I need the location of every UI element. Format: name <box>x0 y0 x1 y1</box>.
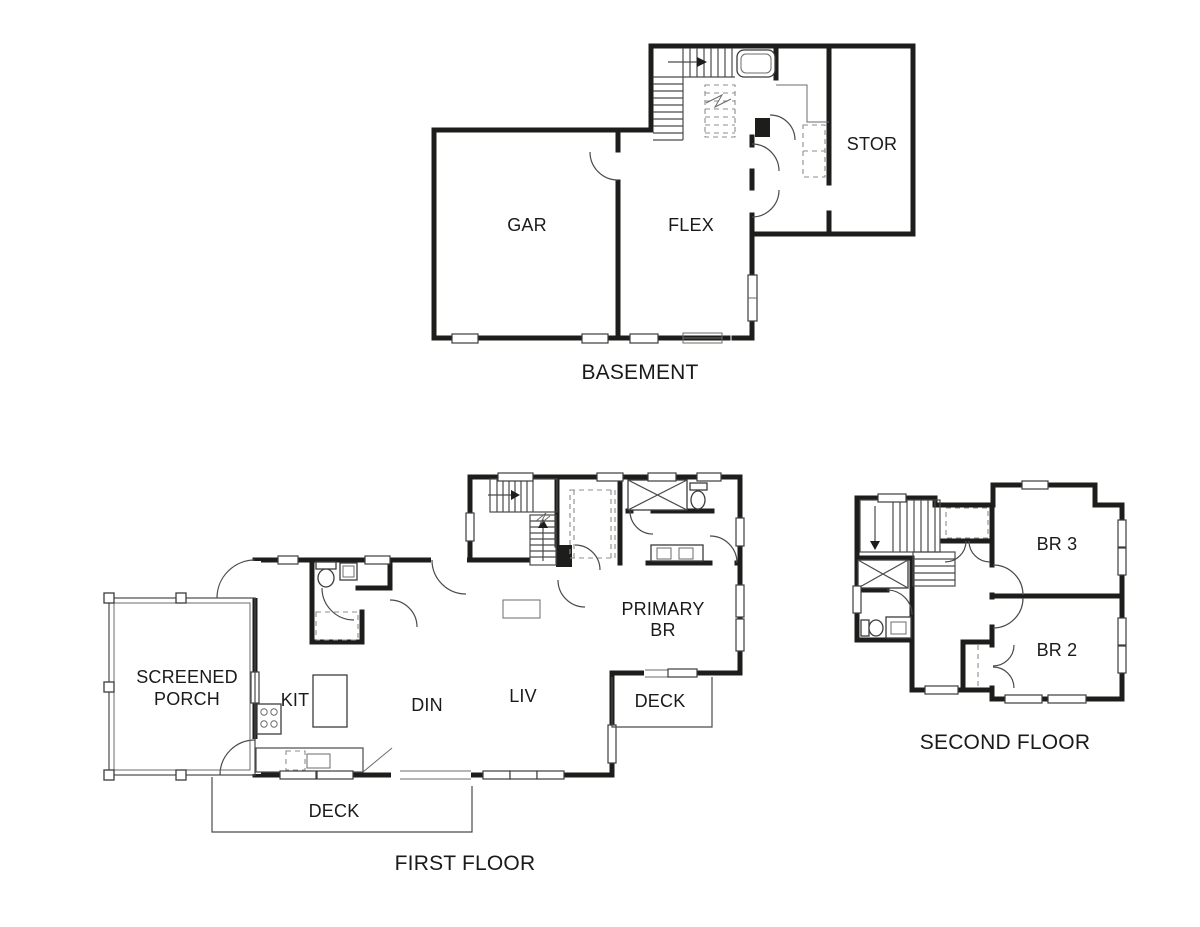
porch-post <box>104 770 114 780</box>
stair-hall-door-arc <box>575 545 600 570</box>
second-floor-plan: BR 3 BR 2 SECOND FLOOR <box>853 481 1126 754</box>
hall-door-arc <box>390 600 417 627</box>
primary-br-label-1: PRIMARY <box>621 599 704 619</box>
first-floor-plan: SCREENED PORCH KIT DIN LIV PRIMARY BR DE… <box>104 473 744 875</box>
basement-dashed-shelves <box>803 125 825 177</box>
powder-door-arc <box>322 588 354 620</box>
first-floor-title: FIRST FLOOR <box>395 852 536 875</box>
powder-room <box>316 562 357 587</box>
garage-label: GAR <box>507 215 547 235</box>
second-floor-title: SECOND FLOOR <box>920 731 1090 754</box>
kitchen-fixtures <box>256 675 392 772</box>
basement-title: BASEMENT <box>581 361 698 384</box>
primary-br-door-arc <box>558 580 585 607</box>
toilet-bowl <box>869 620 883 636</box>
porch-post <box>176 770 186 780</box>
kitchen-island <box>313 675 347 727</box>
bath-door-arc <box>887 590 912 615</box>
kitchen-sink <box>307 754 330 768</box>
basement-bathtub <box>737 50 775 77</box>
br3-closet-dashed <box>946 508 988 538</box>
storage-label: STOR <box>847 134 897 154</box>
br3-label: BR 3 <box>1037 534 1078 554</box>
vanity <box>886 617 911 638</box>
dishwasher-dashed <box>286 751 305 770</box>
closet-door-arc-upper <box>993 645 1014 666</box>
second-floor-interior-walls <box>857 505 1122 699</box>
range <box>257 704 281 734</box>
screened-porch-label-2: PORCH <box>154 689 220 709</box>
stair-down-arrow-head <box>870 541 880 550</box>
cased-opening <box>503 600 540 618</box>
hall-closet-dashed <box>316 612 358 640</box>
stair-wall-stub <box>556 545 572 567</box>
bath-door-arc <box>710 536 737 563</box>
toilet-bowl <box>318 569 334 587</box>
screened-porch-label-1: SCREENED <box>136 667 238 687</box>
primary-bath <box>628 480 707 561</box>
basement-wall-stub <box>755 118 770 137</box>
bath-toilet-bowl <box>691 491 705 509</box>
porch-post <box>104 593 114 603</box>
porch-post <box>176 593 186 603</box>
basement-plan: GAR FLEX STOR BASEMENT <box>434 46 913 384</box>
br2-label: BR 2 <box>1037 640 1078 660</box>
floor-plan-page: GAR FLEX STOR BASEMENT <box>0 0 1200 927</box>
stair-break-mark <box>706 95 731 107</box>
br3-closet-door-right <box>969 541 990 562</box>
basement-stairs <box>653 48 735 140</box>
bath-door-arc <box>770 115 795 140</box>
dining-label: DIN <box>411 695 443 715</box>
basement-entry-stoop <box>683 333 722 343</box>
front-deck-label: DECK <box>309 801 360 821</box>
br3-door-arc <box>993 565 1023 595</box>
closet-door-arc-lower <box>993 667 1014 688</box>
floor-plan-drawing: GAR FLEX STOR BASEMENT <box>0 0 1200 927</box>
toilet-tank <box>861 620 869 636</box>
porch-post <box>104 682 114 692</box>
br2-door-arc <box>993 598 1023 628</box>
toilet-tank <box>316 562 336 569</box>
shower-door-arc <box>630 511 653 534</box>
second-floor-bath <box>858 560 911 638</box>
flex-door-arc-lower <box>752 190 779 217</box>
living-label: LIV <box>509 686 537 706</box>
rear-deck-label: DECK <box>635 691 686 711</box>
primary-br-label-2: BR <box>650 620 675 640</box>
stair-up-arrow-head <box>697 57 707 67</box>
bath-toilet-tank <box>690 483 707 490</box>
first-floor-stairs <box>488 479 557 565</box>
basement-closet-lines <box>776 85 829 122</box>
walk-in-closet <box>570 490 615 558</box>
flex-label: FLEX <box>668 215 714 235</box>
kitchen-label: KIT <box>281 690 310 710</box>
garage-door-arc <box>590 152 618 180</box>
basement-exterior-walls <box>434 46 913 338</box>
flex-door-arc-upper <box>752 144 779 171</box>
